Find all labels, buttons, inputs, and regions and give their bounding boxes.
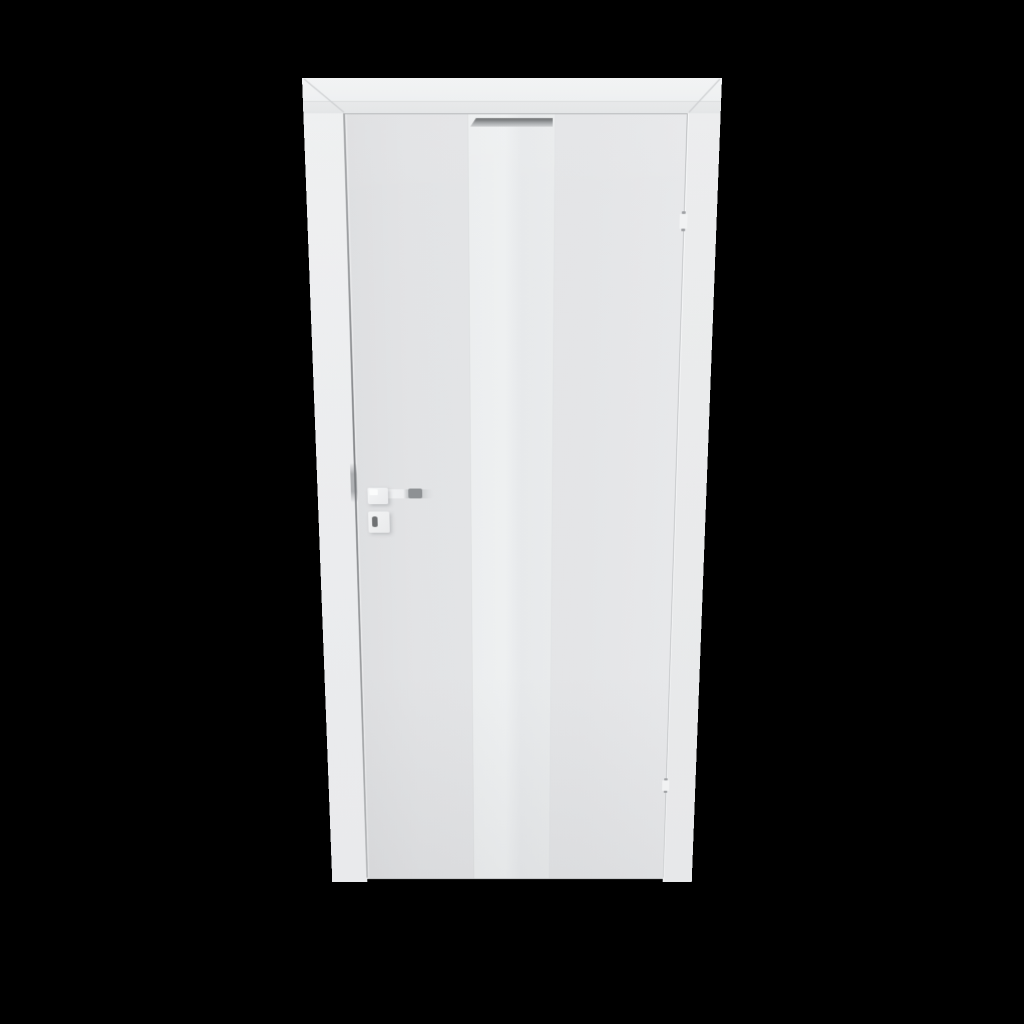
rosette-highlight — [369, 489, 377, 495]
hinge-top — [679, 214, 687, 229]
latch-strike-shadow — [350, 463, 358, 503]
door-assembly — [302, 78, 722, 882]
hinge-top-tick — [682, 211, 686, 214]
aluminium-trim — [470, 118, 552, 127]
door-frame-header — [302, 78, 722, 102]
hinge-top-tick — [681, 229, 685, 232]
door-handle-rosette — [367, 488, 388, 504]
glass-stripe — [467, 114, 555, 878]
key-escutcheon — [368, 512, 390, 533]
hinge-bottom-tick — [664, 778, 668, 780]
door-frame-reveal — [303, 102, 721, 113]
render-canvas — [0, 0, 1024, 1024]
door-handle-grip — [408, 489, 422, 499]
keyhole — [372, 516, 378, 527]
hinge-bottom-tick — [663, 791, 667, 793]
door-leaf — [344, 113, 687, 879]
hinge-bottom — [662, 780, 669, 790]
